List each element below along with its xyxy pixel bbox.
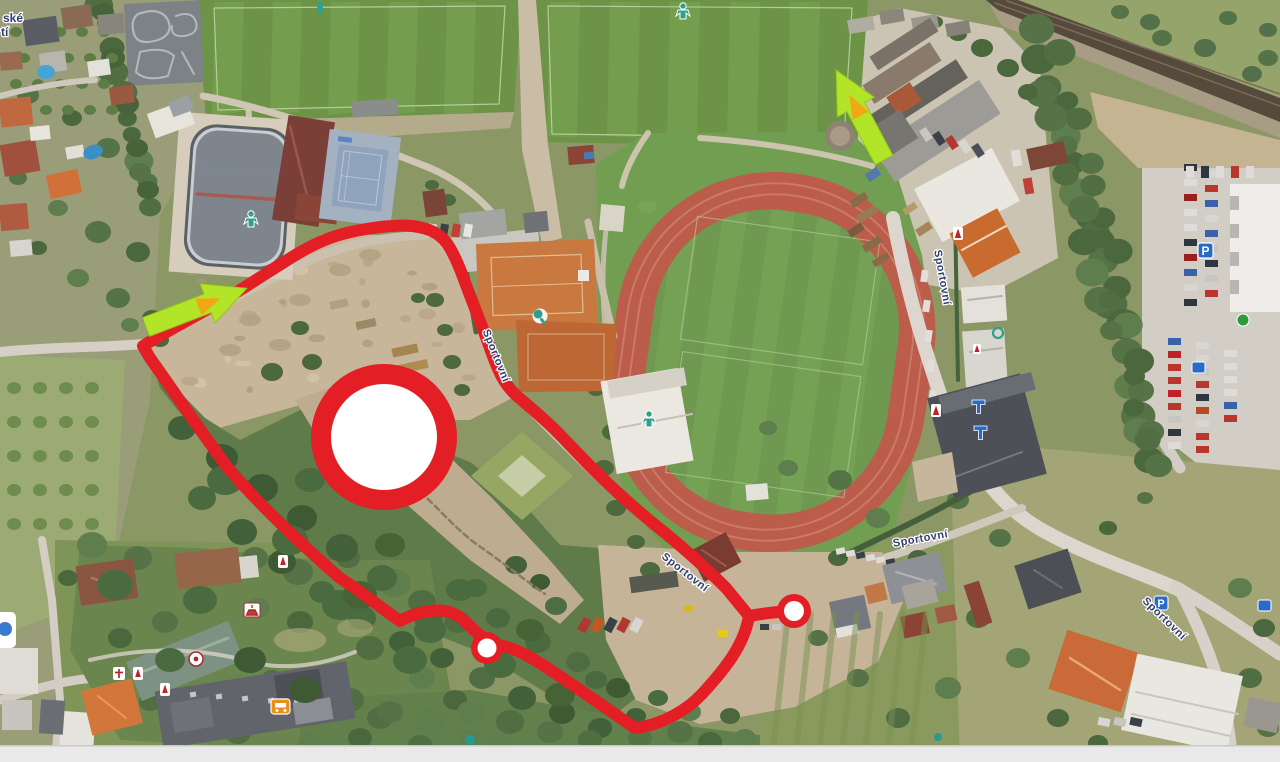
svg-text:P: P: [1201, 244, 1209, 258]
svg-text:ské: ské: [3, 11, 23, 25]
svg-text:tí: tí: [1, 25, 9, 39]
